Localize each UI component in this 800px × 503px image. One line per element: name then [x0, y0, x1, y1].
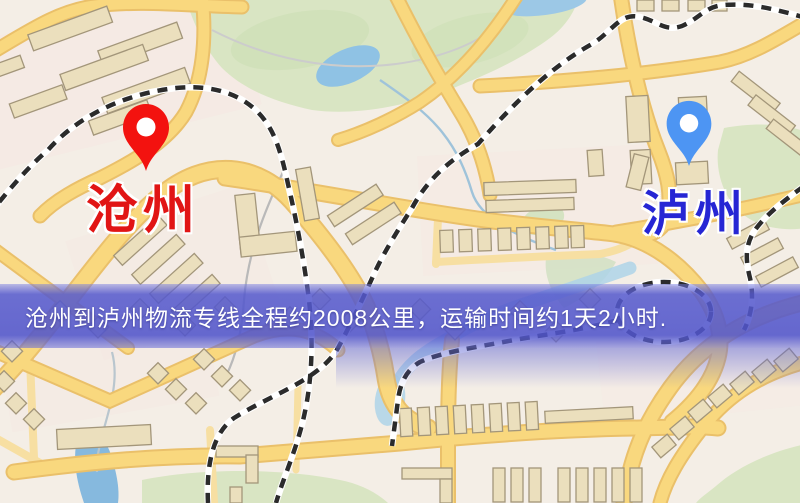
origin-city-label: 沧州: [86, 168, 200, 243]
destination-city-label: 泸州: [642, 174, 748, 244]
route-info-text: 沧州到泸州物流专线全程约2008公里，运输时间约1天2小时.: [25, 299, 667, 333]
route-info-banner: 沧州到泸州物流专线全程约2008公里，运输时间约1天2小时.: [0, 284, 800, 348]
map-canvas: [0, 0, 800, 503]
origin-pin-icon: [120, 101, 172, 173]
destination-pin-icon: [663, 98, 715, 168]
logistics-route-map-image: 沧州到泸州物流专线全程约2008公里，运输时间约1天2小时. 沧州 泸州: [0, 0, 800, 503]
destination-pin-shape: [667, 101, 712, 166]
origin-pin-shape: [123, 104, 169, 171]
